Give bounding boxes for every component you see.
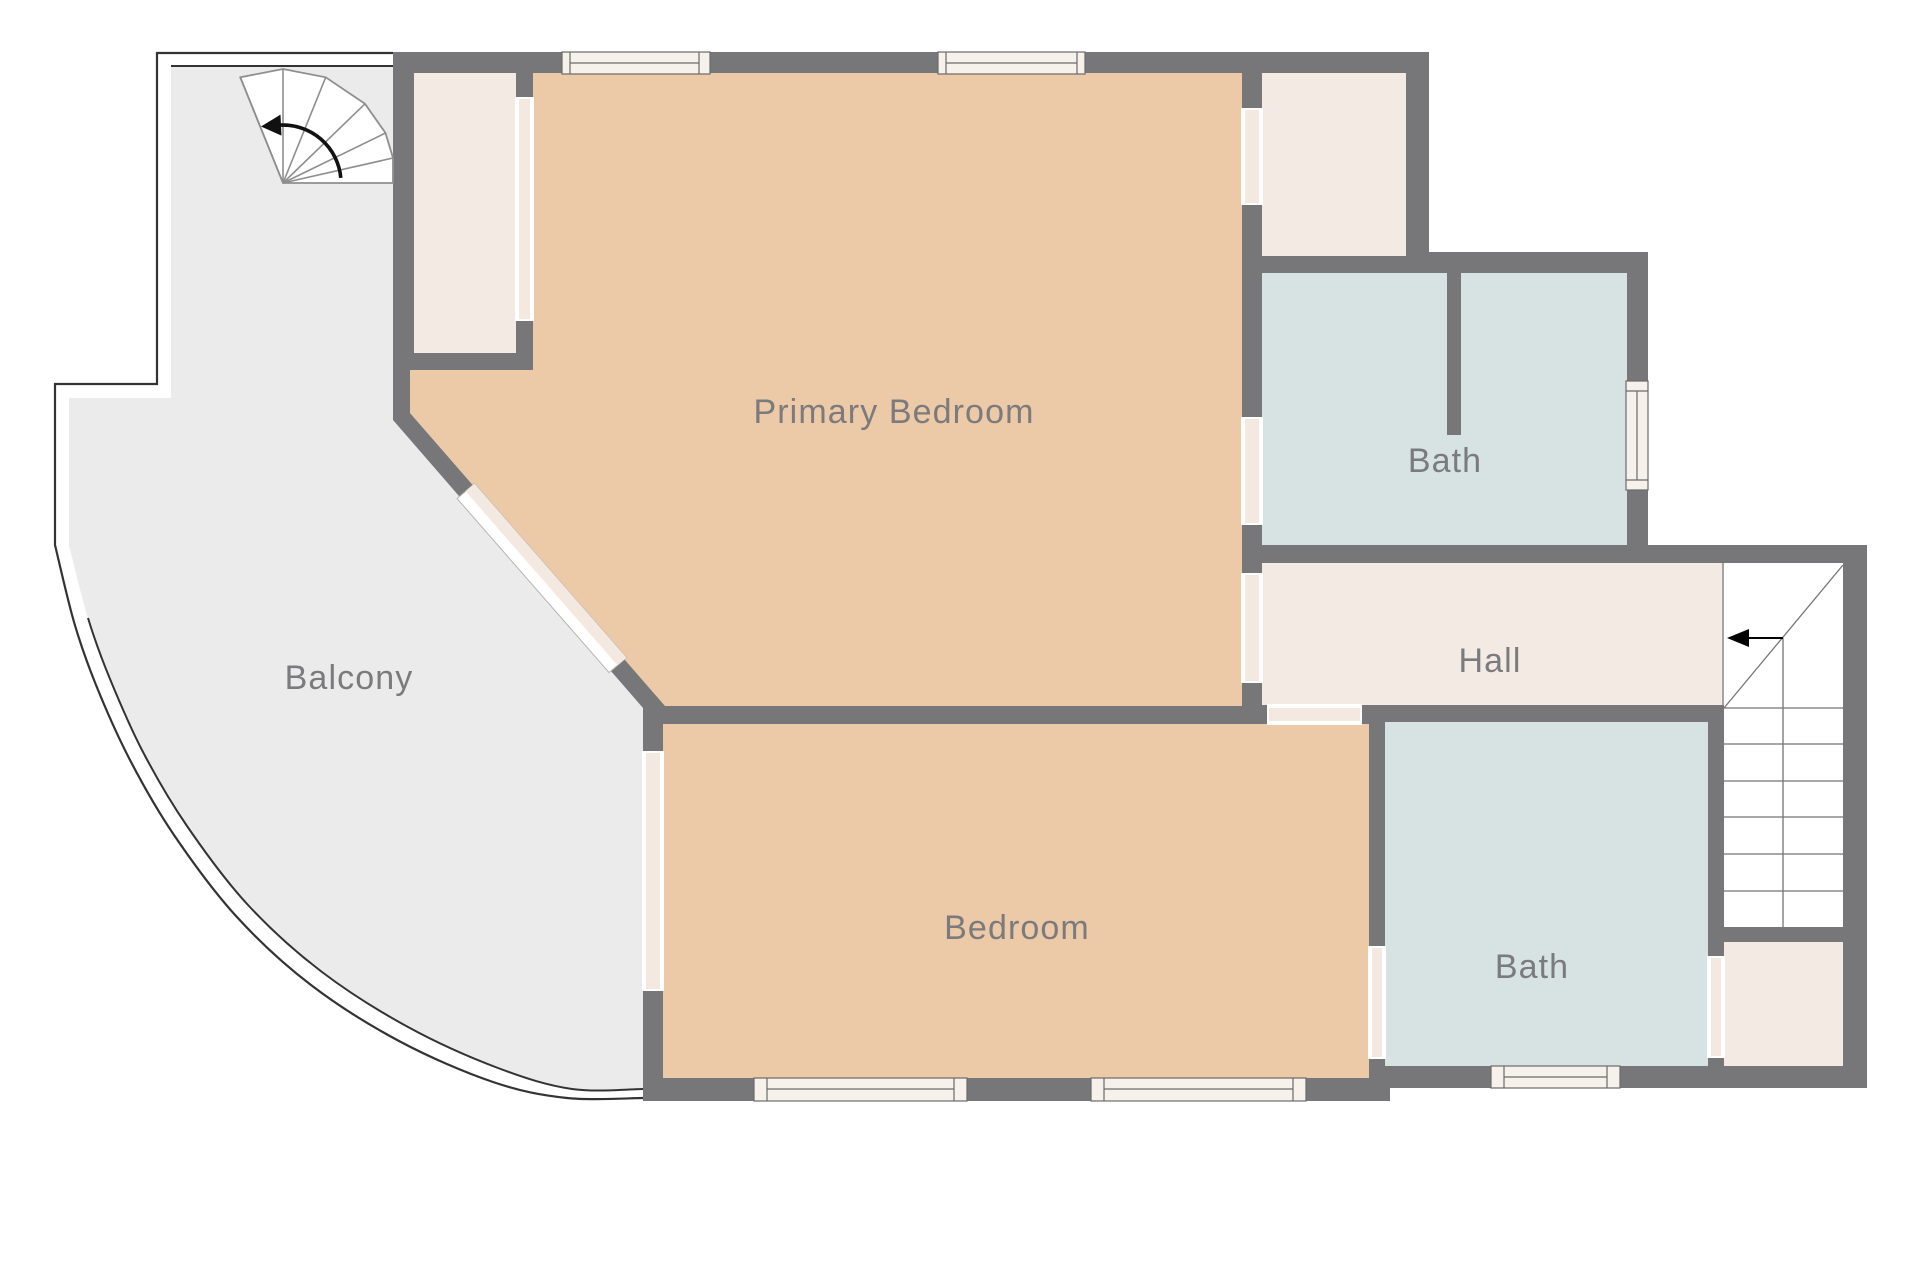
svg-text:Bedroom: Bedroom: [944, 909, 1090, 947]
svg-text:Bath: Bath: [1495, 948, 1569, 986]
svg-text:Balcony: Balcony: [285, 659, 414, 697]
svg-text:Hall: Hall: [1459, 642, 1522, 680]
svg-text:Primary Bedroom: Primary Bedroom: [753, 393, 1034, 431]
svg-text:Bath: Bath: [1408, 442, 1482, 480]
